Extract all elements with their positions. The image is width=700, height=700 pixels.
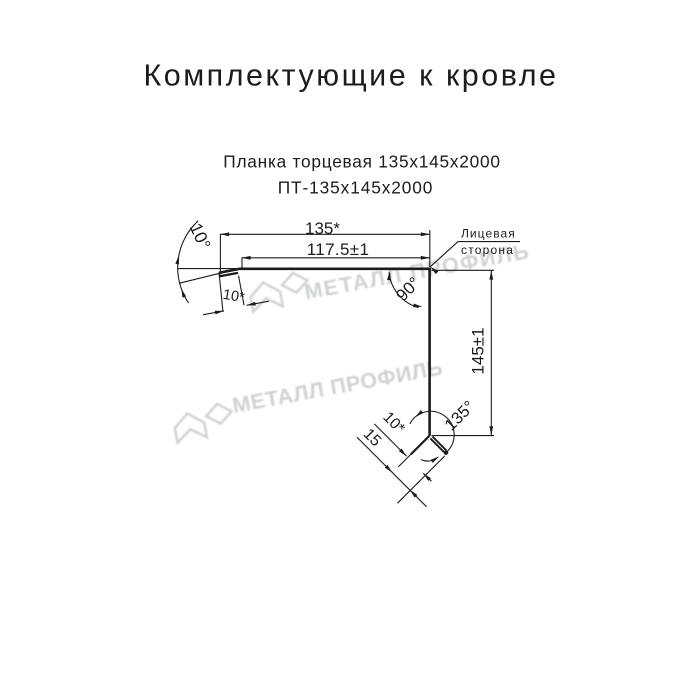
svg-text:Лицевая: Лицевая — [461, 227, 516, 241]
svg-text:145±1: 145±1 — [469, 327, 488, 374]
svg-text:сторона: сторона — [461, 243, 514, 257]
svg-text:135*: 135* — [305, 219, 340, 238]
svg-text:Комплектующие к кровле: Комплектующие к кровле — [143, 59, 558, 93]
svg-text:117.5±1: 117.5±1 — [307, 240, 370, 259]
svg-text:ПТ-135х145х2000: ПТ-135х145х2000 — [278, 178, 434, 198]
svg-text:Планка торцевая 135х145х2000: Планка торцевая 135х145х2000 — [223, 151, 500, 171]
